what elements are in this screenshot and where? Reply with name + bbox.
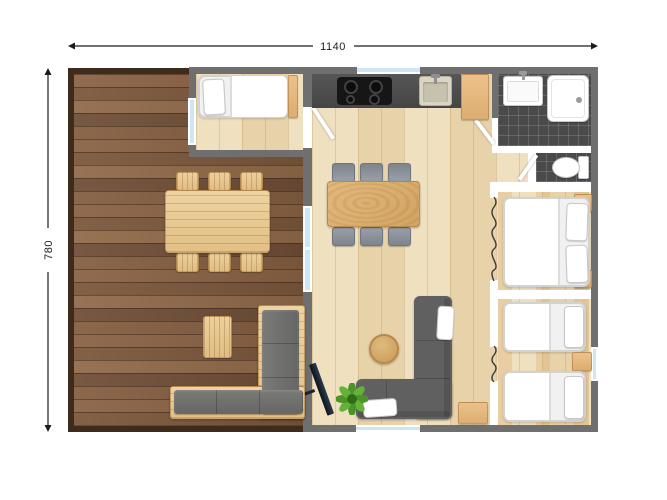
outdoor-chair: [176, 172, 199, 191]
height-dimension-label: 780: [43, 240, 55, 260]
floor-plan: 1140 780: [0, 0, 667, 500]
bedrooms-partition: [490, 290, 591, 299]
window-right-glass: [593, 349, 596, 379]
double-bed-pillow: [565, 203, 588, 242]
wall-bottom: [303, 425, 598, 432]
outdoor-side-table: [203, 316, 232, 358]
window-bottom-glass: [356, 427, 420, 430]
double-bed-pillow: [565, 245, 588, 284]
outdoor-chair: [208, 253, 231, 272]
burner: [369, 94, 380, 105]
height-dimension: 780: [40, 60, 56, 440]
wc-bedroom-partition: [492, 182, 591, 192]
curtain-twin-bedroom: [489, 346, 499, 382]
single-bed-pillow: [202, 78, 226, 115]
nightstand: [572, 352, 592, 371]
outdoor-dining-table: [165, 190, 270, 253]
bathroom-wc-partition: [492, 146, 591, 153]
wall-bathroom-left: [492, 74, 498, 118]
width-dimension-label: 1140: [320, 41, 346, 53]
coffee-table: [369, 334, 399, 364]
twin-bed-pillow: [564, 306, 584, 348]
bathroom-faucet-stem: [522, 74, 525, 80]
outdoor-chair: [208, 172, 231, 191]
double-bed-duvet: [505, 199, 560, 285]
dining-table: [327, 181, 420, 227]
outdoor-sofa-cushions: [174, 390, 303, 414]
hall-wall-d: [490, 381, 498, 425]
curtain-double-bedroom: [489, 197, 499, 281]
burner: [344, 80, 358, 94]
hall-wall-a: [490, 182, 498, 198]
single-bed-duvet: [230, 76, 287, 117]
bathroom-sink-basin: [507, 81, 539, 102]
twin-bed-pillow: [564, 376, 584, 419]
width-dimension: 1140: [60, 38, 607, 54]
hall-wall-c: [490, 299, 498, 347]
hallway-cabinet: [458, 402, 488, 424]
twin-bed-duvet: [505, 304, 551, 350]
dining-chair: [388, 227, 411, 246]
glass-door-divider: [303, 247, 312, 250]
hall-wall-b: [490, 280, 498, 290]
outdoor-chair: [240, 172, 263, 191]
dining-chair: [360, 227, 383, 246]
dining-chair: [388, 163, 411, 182]
wall-small-bedroom-right: [303, 67, 312, 107]
wall-small-bedroom-bottom: [189, 150, 312, 157]
bed-bench: [288, 75, 298, 118]
kitchen-faucet-stem: [434, 77, 437, 84]
kitchen-cabinet: [461, 74, 489, 120]
outdoor-chair: [176, 253, 199, 272]
small-bedroom-door-opening: [303, 107, 312, 148]
shower-drain: [576, 97, 582, 103]
burner: [369, 80, 383, 94]
dining-chair: [360, 163, 383, 182]
window-top-glass: [357, 68, 420, 72]
burner: [346, 95, 355, 104]
sofa-pillow: [436, 306, 455, 341]
dining-chair: [332, 227, 355, 246]
window-small-bedroom-glass: [190, 100, 194, 143]
toilet-bowl: [552, 157, 580, 178]
twin-bed-duvet: [505, 373, 551, 420]
kitchen-sink-basin: [423, 82, 448, 102]
outdoor-chair: [240, 253, 263, 272]
dining-chair: [332, 163, 355, 182]
plant: [336, 383, 368, 415]
